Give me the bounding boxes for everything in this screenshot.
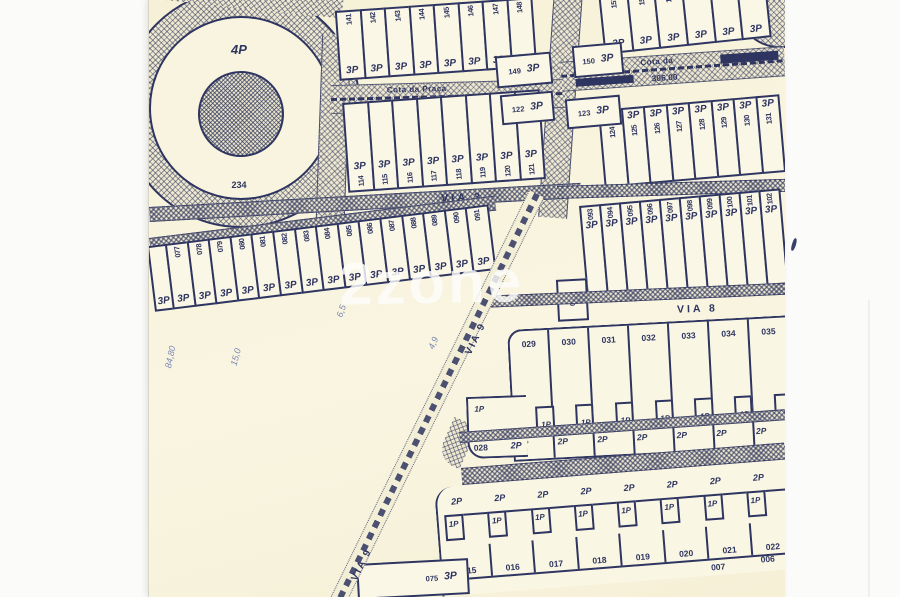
- lot-number: 122: [511, 104, 524, 114]
- building-step: 2P 1P: [658, 471, 706, 530]
- lot-number: 081: [259, 236, 268, 248]
- lot-number: 121: [528, 164, 536, 176]
- lot-area: [770, 124, 774, 171]
- lot-area: [747, 126, 751, 173]
- lot-area: [221, 252, 225, 288]
- lot-number: 117: [430, 171, 438, 182]
- lot-storeys-label: 3P: [451, 155, 464, 166]
- storeys-lower-label: 1P: [750, 495, 760, 505]
- lot-storeys-label: 3P: [639, 36, 652, 47]
- lot-number: 087: [388, 220, 397, 232]
- lot-number: 119: [479, 167, 487, 178]
- lot-storeys-label: 3P: [241, 286, 254, 297]
- lot-number: 031: [601, 334, 616, 345]
- lot-storeys-label: 3P: [685, 212, 698, 223]
- scan-streak: [868, 300, 870, 597]
- lot-number: 033: [681, 330, 696, 341]
- lot-area: [453, 97, 457, 154]
- lot-number: 080: [238, 238, 247, 250]
- lot-number: 100: [726, 196, 734, 208]
- lot-number: 077: [173, 246, 182, 258]
- handwritten-measure: 4,9: [426, 335, 440, 351]
- lot-number: 118: [455, 169, 463, 180]
- storeys-lower-label: 2P: [676, 430, 687, 441]
- lot-storeys-label: 3P: [476, 153, 489, 164]
- lot-number: 088: [409, 217, 418, 229]
- building-step: 2P 1P: [572, 478, 620, 537]
- lot-area: [751, 0, 755, 24]
- lot-number: 079: [216, 241, 225, 253]
- lot-number: 084: [323, 228, 332, 240]
- lot-number: 075: [425, 573, 438, 583]
- lot-number: 141: [345, 14, 353, 26]
- storeys-lower-label: 2P: [510, 441, 521, 450]
- lot-area: [652, 228, 658, 294]
- lot-area: [264, 247, 268, 283]
- lot-area: [200, 255, 204, 291]
- building-step: 2P 1P: [485, 485, 533, 544]
- lot-number: 115: [381, 174, 389, 185]
- lot-150: 150 3P: [572, 42, 625, 78]
- lot-number: 006: [760, 553, 775, 564]
- roundabout-zone-label: 4P: [207, 42, 271, 57]
- scanned-map-page: 4P 234 Cota da Praça 102.00 Cota da 306.…: [0, 0, 900, 597]
- lot-storeys-label: 3P: [722, 27, 735, 38]
- handwritten-measure: 15,0: [229, 347, 243, 367]
- lot-area: [471, 17, 474, 57]
- lot-area: [692, 224, 698, 290]
- lot-storeys-label: 3P: [263, 283, 276, 294]
- lot-123: 123 3P: [565, 95, 622, 130]
- building-step: 2P 1P: [744, 464, 785, 523]
- lot-number: 114: [357, 176, 365, 187]
- roundabout-center-island: [198, 71, 284, 157]
- lot-storeys-label: 3P: [526, 63, 540, 75]
- storeys-upper-label: 2P: [494, 492, 506, 503]
- lot-area: [380, 102, 384, 159]
- lot-area: [328, 239, 332, 275]
- step-line: [463, 512, 488, 516]
- lot-number: 120: [503, 165, 511, 177]
- lot-number: 086: [366, 222, 375, 234]
- storeys-upper-label: 1P: [474, 405, 484, 413]
- step-line: [636, 498, 661, 502]
- building-step: 1P 2P: [591, 384, 634, 446]
- lot-area: [374, 23, 377, 63]
- lot-storeys-label: 3P: [725, 208, 738, 219]
- lot-area: [712, 222, 718, 288]
- lot-number: 130: [742, 115, 750, 127]
- lot-number: 090: [452, 212, 461, 224]
- lot-storeys-label: 3P: [765, 205, 778, 216]
- lot-storeys-label: 3P: [157, 296, 170, 307]
- lot-number: 123: [577, 108, 590, 118]
- lot-number: 078: [195, 243, 204, 255]
- lot-number: 099: [706, 198, 714, 210]
- lot-storeys-label: 3P: [378, 160, 391, 171]
- block-029-035: 029 030 031 032 033 034 035: [507, 315, 785, 461]
- lot-area: [355, 104, 359, 161]
- lot-storeys-label: 3P: [625, 217, 638, 228]
- lot-number: 028: [474, 443, 488, 452]
- storeys-lower-label: 1P: [664, 502, 674, 512]
- lot-area: [422, 20, 425, 60]
- lot-number: 022: [750, 520, 785, 555]
- lot-area: [286, 244, 290, 280]
- lot-storeys-label: 3P: [716, 103, 729, 114]
- building-step: 1P 2P: [631, 381, 674, 443]
- street-label-via8: VIA 8: [677, 303, 718, 315]
- lot-storeys-label: 3P: [605, 219, 618, 230]
- lot-number: 146: [467, 5, 475, 17]
- lot-storeys-label: 3P: [500, 151, 513, 162]
- lot-parcel: 3P: [736, 0, 772, 40]
- building-step: 2P 1P: [529, 481, 577, 540]
- lot-number: 094: [606, 207, 614, 219]
- building-step: 1P 2P: [671, 379, 714, 441]
- lot-number: 144: [418, 9, 426, 21]
- lot-area: [725, 128, 729, 175]
- lot-number: 085: [345, 225, 354, 237]
- building-step: 2P 1P: [442, 488, 490, 547]
- lot-storeys-label: 3P: [672, 107, 685, 118]
- lot-number: 030: [561, 336, 576, 347]
- lot-area: [672, 226, 678, 292]
- lot-number: 089: [431, 215, 440, 227]
- lot-storeys-label: 3P: [444, 571, 457, 582]
- lot-area: [447, 18, 450, 58]
- building-step: 2P 1P: [615, 474, 663, 533]
- lot-storeys-label: 3P: [585, 220, 598, 231]
- lot-number: 093: [587, 209, 595, 221]
- lot-storeys-label: 3P: [353, 162, 366, 173]
- lot-area: [478, 96, 482, 153]
- lot-storeys-label: 3P: [177, 293, 190, 304]
- roundabout-lot-number: 234: [217, 180, 261, 190]
- lot-area: [520, 13, 523, 53]
- lot-number: 143: [393, 10, 401, 22]
- lot-area: [429, 99, 433, 156]
- building-step: 1P 2P: [710, 377, 753, 439]
- lot-number: 145: [442, 7, 450, 19]
- lot-storeys-label: 3P: [745, 207, 758, 218]
- lot-storeys-label: 3P: [667, 33, 680, 44]
- lot-number: 020: [664, 527, 710, 562]
- lot-storeys-label: 3P: [305, 278, 318, 289]
- lot-storeys-label: 3P: [739, 101, 752, 112]
- lot-storeys-label: 3P: [284, 280, 297, 291]
- storeys-upper-label: 2P: [451, 496, 463, 507]
- lot-number: 095: [626, 205, 634, 217]
- lot-number: 021: [707, 523, 753, 558]
- lot-number: 083: [302, 230, 311, 242]
- lot-area: [670, 3, 673, 33]
- storeys-lower-label: 1P: [448, 519, 458, 529]
- lot-area: [632, 229, 638, 295]
- lot-number: 131: [765, 113, 773, 125]
- storeys-lower-label: 1P: [707, 499, 717, 509]
- lot-149: 149 3P: [495, 52, 554, 89]
- street-elevation-value: 306.00: [651, 72, 678, 82]
- lot-number: 091: [473, 209, 482, 221]
- lot-area: [725, 0, 728, 27]
- lot-number: 150: [582, 56, 595, 66]
- lot-area: [615, 8, 618, 38]
- lot-number: 142: [369, 12, 377, 24]
- lot-number: 098: [686, 200, 694, 212]
- lot-area: [642, 5, 645, 35]
- building-step: 1P 2P: [750, 375, 785, 437]
- storeys-lower-label: 1P: [578, 509, 588, 519]
- lot-area: [697, 0, 700, 29]
- storeys-upper-label: 2P: [580, 486, 592, 497]
- storeys-lower-label: 2P: [716, 428, 727, 439]
- lot-number: 149: [508, 66, 521, 76]
- lot-storeys-label: 3P: [665, 213, 678, 224]
- lot-number: 129: [720, 117, 728, 129]
- lot-number: 126: [653, 123, 661, 135]
- lot-number: 016: [490, 540, 536, 575]
- lot-area: [680, 132, 684, 179]
- lot-row-151-155: 151 3P 152 3P 153 3P 154 3P 155 3P: [598, 0, 771, 55]
- lot-storeys-label: 3P: [370, 64, 383, 75]
- step-line: [549, 505, 574, 509]
- lot-area: [398, 22, 401, 62]
- lot-number: 116: [406, 173, 414, 184]
- storeys-upper-label: 2P: [537, 489, 549, 500]
- lot-number: 147: [491, 4, 499, 16]
- lot-area: [772, 217, 778, 283]
- lot-storeys-label: 3P: [600, 53, 614, 65]
- lot-number: 128: [698, 119, 706, 131]
- lot-area: [635, 136, 639, 183]
- street-name: Cota da: [640, 57, 673, 67]
- lot-storeys-label: 3P: [198, 291, 211, 302]
- lot-storeys-label: 3P: [530, 101, 544, 113]
- step-line: [506, 508, 531, 512]
- lot-storeys-label: 3P: [220, 288, 233, 299]
- watermark: 2zone: [338, 246, 524, 318]
- lot-number: 019: [620, 530, 666, 565]
- storeys-upper-label: 2P: [666, 479, 678, 490]
- storeys-lower-label: 1P: [492, 516, 502, 526]
- lot-number: 102: [766, 193, 774, 205]
- lot-storeys-label: 3P: [444, 59, 457, 70]
- street-name: Cota da Praça: [387, 85, 447, 95]
- lot-storeys-label: 3P: [761, 99, 774, 110]
- map-paper: 4P 234 Cota da Praça 102.00 Cota da 306.…: [148, 0, 785, 597]
- lot-storeys-label: 3P: [705, 210, 718, 221]
- lot-storeys-label: 3P: [749, 24, 762, 35]
- lot-area: [612, 231, 618, 297]
- lot-storeys-label: 3P: [468, 57, 481, 68]
- lot-number: 096: [646, 203, 654, 215]
- lot-row-124-131: 3P 124 3P 125 3P 126 3P 127 3P 128 3P: [598, 94, 785, 188]
- lot-storeys-label: 3P: [694, 105, 707, 116]
- lot-area: [613, 138, 617, 185]
- lot-storeys-label: 3P: [346, 66, 359, 77]
- lot-number: 127: [675, 121, 683, 133]
- lot-area: [732, 221, 738, 287]
- lot-122: 122 3P: [500, 91, 555, 126]
- step-line: [679, 495, 704, 499]
- lot-storeys-label: 3P: [402, 158, 415, 169]
- lot-area: [404, 101, 408, 158]
- lot-number: 017: [533, 537, 579, 572]
- lot-number: 152: [637, 0, 646, 6]
- lot-number: 124: [608, 127, 616, 139]
- storeys-lower-label: 2P: [557, 436, 568, 447]
- storeys-upper-label: 2P: [709, 475, 721, 486]
- lot-number: 032: [641, 332, 656, 343]
- lot-number: 101: [746, 195, 754, 207]
- lot-area: [307, 242, 311, 278]
- scan-mark: [790, 238, 798, 252]
- lot-number: 018: [577, 534, 623, 569]
- lot-storeys-label: 3P: [524, 150, 537, 161]
- lot-number: 034: [721, 328, 736, 339]
- building-step: 2P 1P: [701, 468, 749, 527]
- lot-area: [349, 25, 352, 65]
- lot-storeys-label: 3P: [395, 62, 408, 73]
- lot-area: [592, 233, 598, 299]
- storeys-lower-label: 2P: [756, 426, 767, 437]
- lot-storeys-label: 3P: [419, 60, 432, 71]
- lot-number: 148: [516, 2, 524, 14]
- lot-number: 035: [761, 326, 776, 337]
- lot-storeys-label: 3P: [596, 105, 610, 117]
- lot-number: 007: [711, 561, 726, 572]
- step-line: [592, 502, 617, 506]
- step-line: [722, 491, 747, 495]
- lot-number: 153: [665, 0, 674, 3]
- lot-storeys-label: 3P: [649, 109, 662, 120]
- lot-storeys-label: 3P: [627, 111, 640, 122]
- lot-number: 097: [666, 202, 674, 214]
- step-line: [765, 488, 785, 492]
- lot-area: [243, 250, 247, 286]
- building-step: 1P 2P: [552, 386, 595, 448]
- lot-number: 125: [630, 125, 638, 137]
- lot-number: 082: [280, 233, 289, 245]
- lot-area: [658, 134, 662, 181]
- storeys-upper-label: 2P: [753, 472, 765, 483]
- lot-storeys-label: 3P: [694, 30, 707, 41]
- storeys-lower-label: 1P: [535, 512, 545, 522]
- lot-number: 151: [610, 0, 619, 9]
- lot-area: [702, 130, 706, 177]
- storeys-lower-label: 2P: [597, 434, 608, 445]
- storeys-lower-label: 2P: [637, 432, 648, 443]
- storeys-lower-label: 1P: [621, 506, 631, 516]
- lot-storeys-label: 3P: [427, 157, 440, 168]
- lot-number: 029: [521, 339, 536, 350]
- lot-075: 075 3P: [356, 558, 470, 597]
- lot-storeys-label: 3P: [645, 215, 658, 226]
- lot-area: [178, 258, 182, 294]
- lot-area: [752, 219, 758, 285]
- handwritten-measure: 84,80: [163, 345, 177, 369]
- storeys-upper-label: 2P: [623, 482, 635, 493]
- lot-area: [496, 15, 499, 55]
